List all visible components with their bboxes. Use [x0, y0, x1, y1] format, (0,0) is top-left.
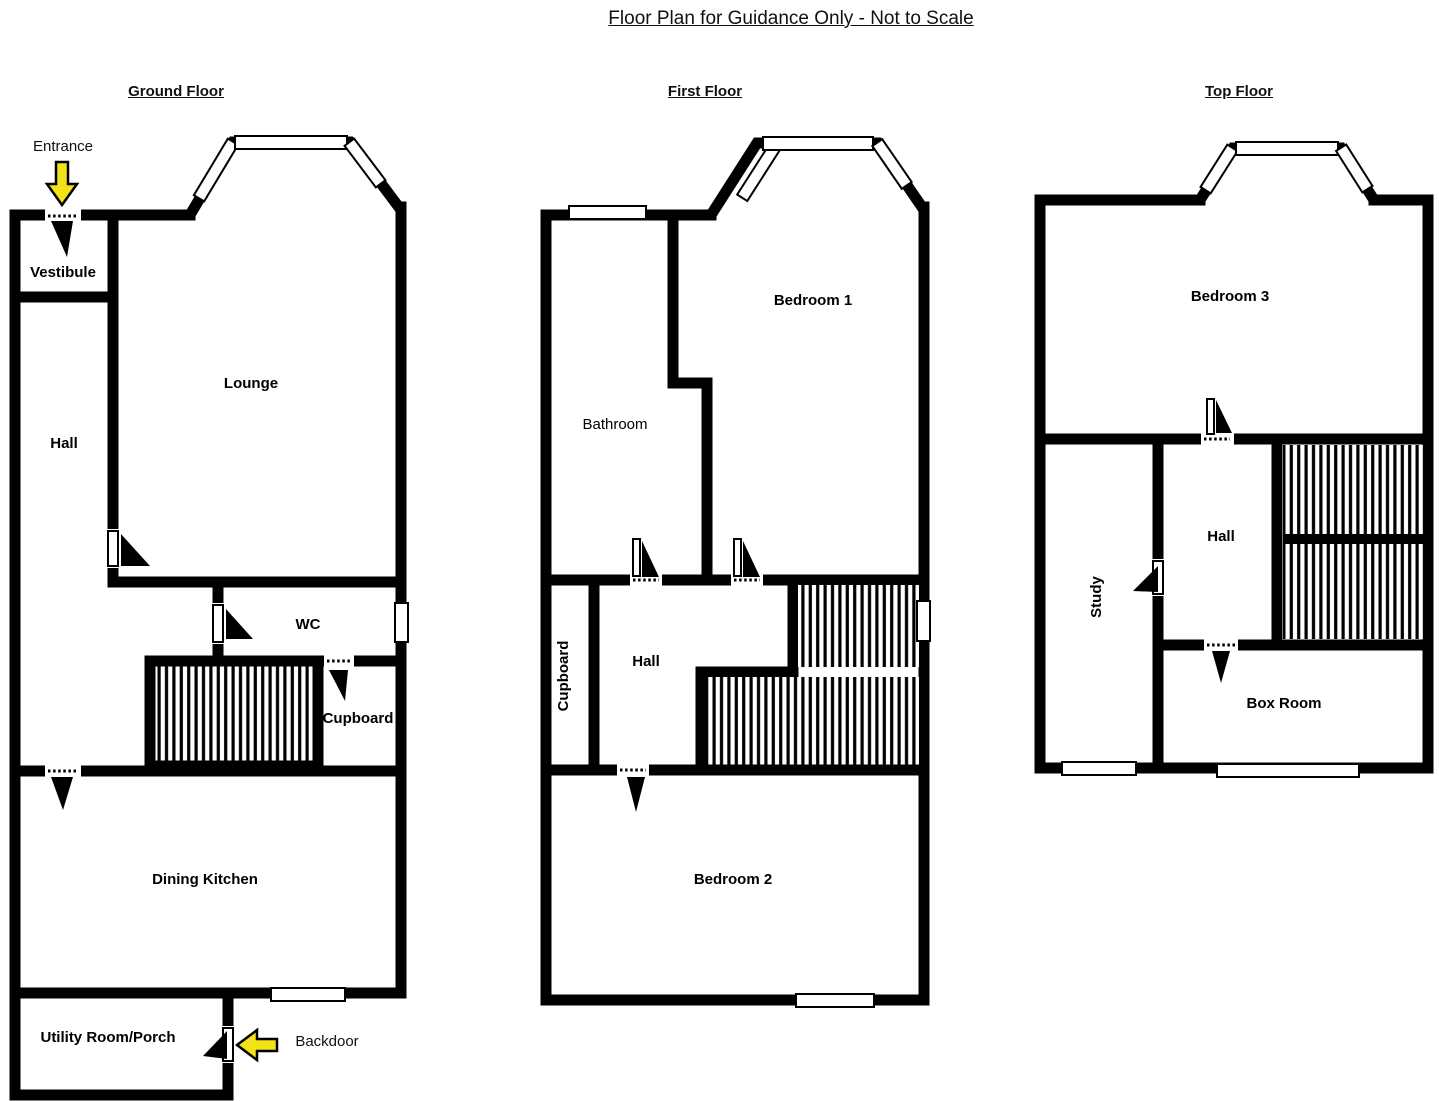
gf-wc-door-jamb [213, 605, 223, 642]
ff-bathroom-door-jamb [633, 539, 640, 576]
page-title: Floor Plan for Guidance Only - Not to Sc… [608, 8, 973, 30]
tf-boxroom-window [1217, 764, 1359, 777]
ff-bedroom2-window [796, 994, 874, 1007]
tf-boxroom-label: Box Room [1247, 695, 1322, 712]
gf-lounge-label: Lounge [224, 375, 278, 392]
gf-lounge-door-icon [121, 534, 150, 566]
entrance-label: Entrance [33, 138, 93, 155]
gf-bay-window-left [194, 139, 238, 202]
ff-stairs-window [917, 601, 930, 641]
gf-vestibule-label: Vestibule [30, 264, 96, 281]
gf-utility-label: Utility Room/Porch [40, 1029, 175, 1046]
tf-bay-window-left [1201, 145, 1238, 194]
tf-bay-window-center [1236, 142, 1338, 155]
ff-cupboard-label: Cupboard [555, 641, 572, 712]
ground-floor-title: Ground Floor [128, 83, 224, 100]
ff-bathroom-label: Bathroom [582, 416, 647, 433]
tf-stairs-upper [1283, 445, 1423, 535]
gf-entrance-door-icon [51, 221, 73, 257]
backdoor-label: Backdoor [295, 1033, 358, 1050]
tf-bedroom3-door-jamb [1207, 399, 1214, 434]
entrance-arrow-icon [47, 162, 77, 205]
gf-kitchen-door-icon [51, 777, 73, 810]
gf-stairs [150, 661, 318, 766]
tf-bay-window-right [1336, 145, 1372, 193]
ff-bedroom2-label: Bedroom 2 [694, 871, 772, 888]
ff-stairs-lower [706, 677, 919, 765]
first-floor-plan: Bedroom 1 Bathroom Cupboard Hall Bedroom… [546, 137, 930, 1007]
ff-bay-window-center [763, 137, 873, 150]
gf-bay-window-center [235, 136, 347, 149]
ground-floor-plan: Vestibule Hall Lounge WC Cupboard Dining… [15, 136, 408, 1095]
ff-hall-label: Hall [632, 653, 660, 670]
tf-study-window [1062, 762, 1136, 775]
ff-bay-window-right [872, 139, 911, 189]
gf-hall-label: Hall [50, 435, 78, 452]
tf-boxroom-door-icon [1212, 651, 1230, 683]
floor-plan-drawing: Vestibule Hall Lounge WC Cupboard Dining… [0, 0, 1439, 1101]
gf-wc-door-icon [226, 609, 253, 639]
gf-cupboard-door-icon [329, 670, 348, 701]
gf-backdoor-icon [203, 1031, 227, 1059]
ff-bathroom-door-icon [642, 541, 659, 577]
tf-bedroom3-door-icon [1216, 400, 1232, 433]
ff-bedroom1-door-icon [743, 541, 760, 577]
tf-hall-label: Hall [1207, 528, 1235, 545]
ff-bathroom-window [569, 206, 646, 219]
top-floor-plan: Bedroom 3 Study Hall Box Room [1040, 142, 1428, 777]
floor-plan-page: Vestibule Hall Lounge WC Cupboard Dining… [0, 0, 1439, 1101]
gf-wc-window [395, 603, 408, 642]
ff-bedroom2-door-icon [627, 777, 645, 812]
tf-study-door-icon [1133, 566, 1158, 592]
gf-dining-kitchen-label: Dining Kitchen [152, 871, 258, 888]
gf-cupboard-label: Cupboard [323, 710, 394, 727]
gf-bay-window-right [345, 139, 386, 188]
ff-bedroom1-door-jamb [734, 539, 741, 576]
gf-wc-label: WC [296, 616, 321, 633]
top-floor-title: Top Floor [1205, 83, 1273, 100]
ff-bathroom-divider-wall [673, 215, 707, 580]
tf-study-label: Study [1088, 576, 1105, 618]
gf-lounge-door-jamb [108, 531, 118, 566]
tf-stairs-lower [1283, 544, 1423, 639]
tf-bedroom3-label: Bedroom 3 [1191, 288, 1269, 305]
ff-stairs-upper [798, 585, 919, 667]
backdoor-arrow-icon [237, 1030, 277, 1060]
first-floor-title: First Floor [668, 83, 742, 100]
ff-bedroom1-label: Bedroom 1 [774, 292, 852, 309]
gf-kitchen-window [271, 988, 345, 1001]
